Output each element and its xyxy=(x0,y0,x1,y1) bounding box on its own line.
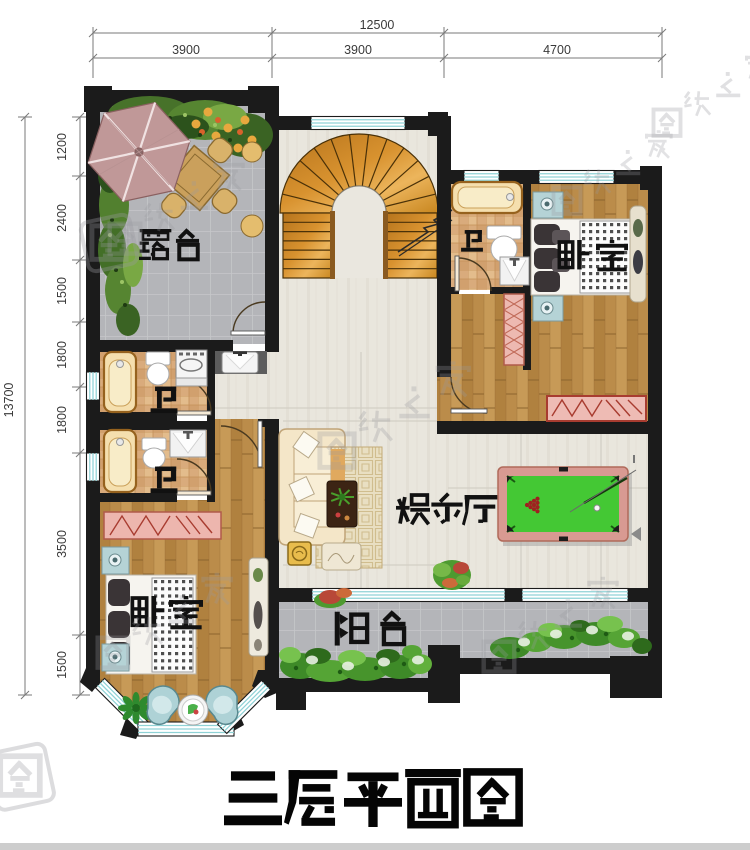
svg-text:3900: 3900 xyxy=(172,43,200,57)
svg-text:1800: 1800 xyxy=(55,341,69,369)
svg-text:1500: 1500 xyxy=(55,651,69,679)
svg-text:3900: 3900 xyxy=(344,43,372,57)
svg-text:4700: 4700 xyxy=(543,43,571,57)
svg-text:3500: 3500 xyxy=(55,530,69,558)
svg-text:2400: 2400 xyxy=(55,204,69,232)
svg-text:13700: 13700 xyxy=(2,383,16,418)
svg-text:1200: 1200 xyxy=(55,133,69,161)
svg-text:1800: 1800 xyxy=(55,406,69,434)
svg-text:12500: 12500 xyxy=(360,18,395,32)
svg-text:1500: 1500 xyxy=(55,277,69,305)
